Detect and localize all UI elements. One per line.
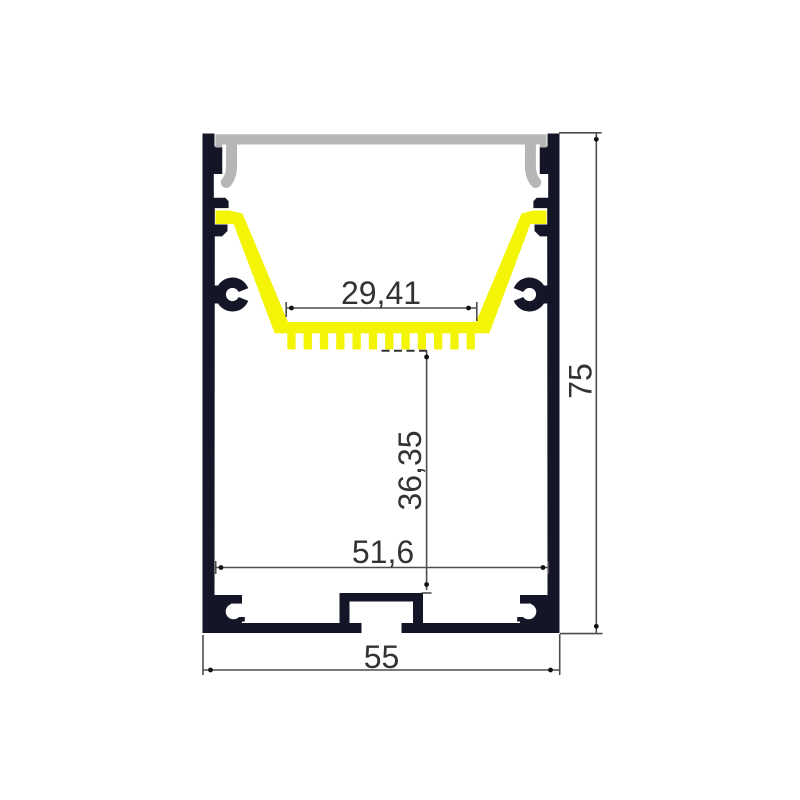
- svg-text:36,35: 36,35: [392, 430, 428, 510]
- svg-text:51,6: 51,6: [352, 534, 414, 570]
- svg-text:55: 55: [364, 639, 400, 675]
- svg-text:29,41: 29,41: [341, 275, 421, 311]
- svg-text:75: 75: [563, 363, 599, 399]
